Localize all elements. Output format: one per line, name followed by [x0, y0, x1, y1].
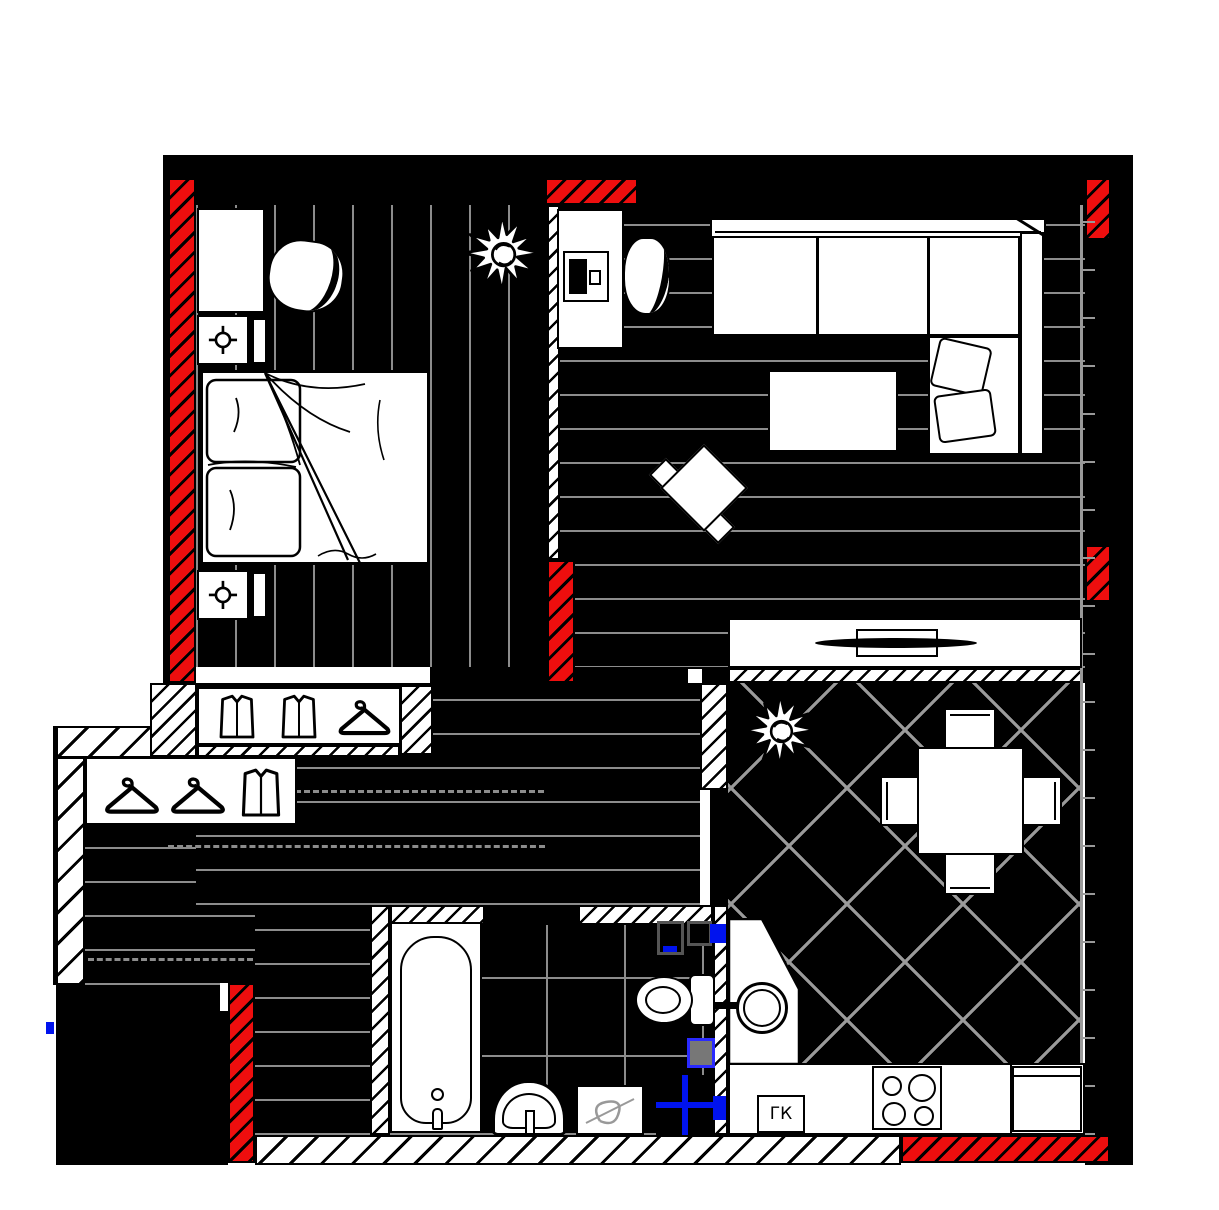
- coffee-table: [768, 370, 898, 452]
- sofa-cushion-2: [933, 388, 997, 444]
- hall-hidden-edge-3: [88, 958, 253, 961]
- living-hall-door-gap: [688, 669, 702, 683]
- riser-valve: [663, 946, 677, 952]
- bathtub-drain: [431, 1088, 444, 1101]
- bedroom-plant-icon: [460, 213, 544, 293]
- clothes-icon: [239, 767, 283, 819]
- sofa-back: [710, 218, 1046, 238]
- plumbing-riser-2: [687, 921, 712, 946]
- sofa-seat-2: [817, 236, 929, 336]
- living-hall-wall: [575, 667, 728, 683]
- fridge-line: [1014, 1075, 1080, 1077]
- bedroom-nightstand-2: [197, 570, 249, 620]
- ceiling-light-icon: [208, 325, 238, 355]
- bathroom-west-wall: [370, 905, 390, 1135]
- sofa-seat-1: [712, 236, 818, 336]
- shaft-gray-box: [687, 1038, 715, 1068]
- left-red-masonry-wall: [168, 178, 196, 683]
- bedroom-nightstand-2-shelf: [252, 572, 267, 618]
- gas-boiler-box: ГК: [757, 1095, 805, 1133]
- hall-outer-edge-line: [53, 726, 57, 985]
- entry-void-block: [56, 985, 228, 1165]
- burner-1: [882, 1076, 902, 1096]
- washing-machine-sketch: [578, 1087, 642, 1133]
- hanger-icon: [169, 775, 227, 815]
- entry-red-masonry-wall: [228, 983, 255, 1163]
- washbasin-tap: [525, 1110, 535, 1135]
- bedroom-nightstand-1-shelf: [252, 318, 267, 364]
- laptop-key: [589, 270, 601, 285]
- plumbing-riser-1: [657, 921, 684, 955]
- armchair-seat: [660, 444, 748, 532]
- sofa-seat-3: [928, 236, 1020, 336]
- dining-chair-top: [944, 708, 996, 750]
- rotated-armchair: [645, 435, 755, 545]
- chair-back-line: [950, 714, 990, 716]
- meter-cross-v: [682, 1075, 688, 1135]
- chair-back-line: [886, 782, 888, 820]
- kitchen-sink-inner: [743, 989, 781, 1027]
- desk-chair: [623, 237, 671, 315]
- hall-closet-1: [197, 687, 401, 745]
- pillow-2: [207, 468, 300, 556]
- dining-table: [917, 747, 1024, 855]
- kitchen-west-partition-upper: [700, 683, 728, 790]
- burner-4: [914, 1106, 934, 1126]
- entry-wall-notch: [220, 983, 228, 1011]
- water-meter-box: [656, 1075, 714, 1135]
- hanger-icon: [103, 775, 161, 815]
- hallway-floor-left-low: [196, 905, 255, 985]
- top-red-masonry-segment: [545, 178, 638, 205]
- apartment-floor-plan: ГК: [0, 0, 1219, 1210]
- burner-2: [908, 1074, 936, 1102]
- laptop-screen: [569, 259, 587, 294]
- toilet-bowl: [635, 976, 693, 1024]
- hall-closet-2: [85, 757, 297, 825]
- clothes-icon: [279, 694, 319, 740]
- clothes-icon: [217, 694, 257, 740]
- bedroom-hall-step-wall: [150, 683, 197, 757]
- kitchen-west-partition-lower: [710, 790, 728, 910]
- bottom-wall-hatch: [255, 1135, 901, 1165]
- hall-hidden-edge-2: [168, 845, 545, 848]
- hob: [872, 1066, 942, 1130]
- bottom-red-masonry-wall: [901, 1135, 1110, 1163]
- hanger-icon: [337, 697, 392, 737]
- dining-chair-bottom: [944, 853, 996, 895]
- bedroom-nightstand-1: [197, 315, 249, 365]
- chair-back-line: [950, 887, 990, 889]
- gas-boiler-label: ГК: [770, 1104, 792, 1124]
- living-kitchen-partition: [728, 668, 1085, 683]
- chair-back-stripe: [628, 237, 671, 315]
- hallway-floor-bottom: [255, 905, 370, 1135]
- tv-screen: [815, 638, 977, 648]
- kitchen-sink: [736, 982, 788, 1034]
- bedroom-living-red-segment: [547, 560, 575, 683]
- sofa-right-arm: [1020, 232, 1044, 455]
- fridge: [1012, 1066, 1082, 1132]
- ceiling-light-icon: [208, 580, 238, 610]
- hall-plumbing-mark: [46, 1022, 54, 1034]
- wardrobe-divider-strip: [197, 745, 400, 757]
- toilet-bowl-inner: [645, 986, 681, 1014]
- bedroom-south-wall: [430, 667, 547, 683]
- bathtub-faucet: [432, 1108, 443, 1130]
- bedroom-wardrobe: [197, 208, 265, 313]
- right-window-line: [1080, 205, 1095, 1135]
- chair-back-line: [1054, 782, 1056, 820]
- laptop: [563, 251, 609, 302]
- sofa-back-line: [715, 231, 1041, 233]
- kitchen-plant-icon: [743, 693, 817, 767]
- plumbing-connection-2: [713, 1096, 726, 1120]
- bottom-wall-corner: [1110, 1135, 1133, 1165]
- plumbing-connection-1: [710, 924, 726, 943]
- washing-machine: [576, 1085, 644, 1135]
- dining-chair-right: [1022, 776, 1062, 826]
- dining-chair-left: [880, 776, 920, 826]
- top-wall: [163, 155, 1133, 205]
- bathroom-door-leaf: [485, 905, 578, 925]
- burner-3: [882, 1102, 906, 1126]
- double-bed: [200, 370, 430, 565]
- sink-handle: [714, 1002, 738, 1009]
- wardrobe-east-stub: [400, 685, 433, 755]
- hall-outer-wall-left: [56, 757, 85, 985]
